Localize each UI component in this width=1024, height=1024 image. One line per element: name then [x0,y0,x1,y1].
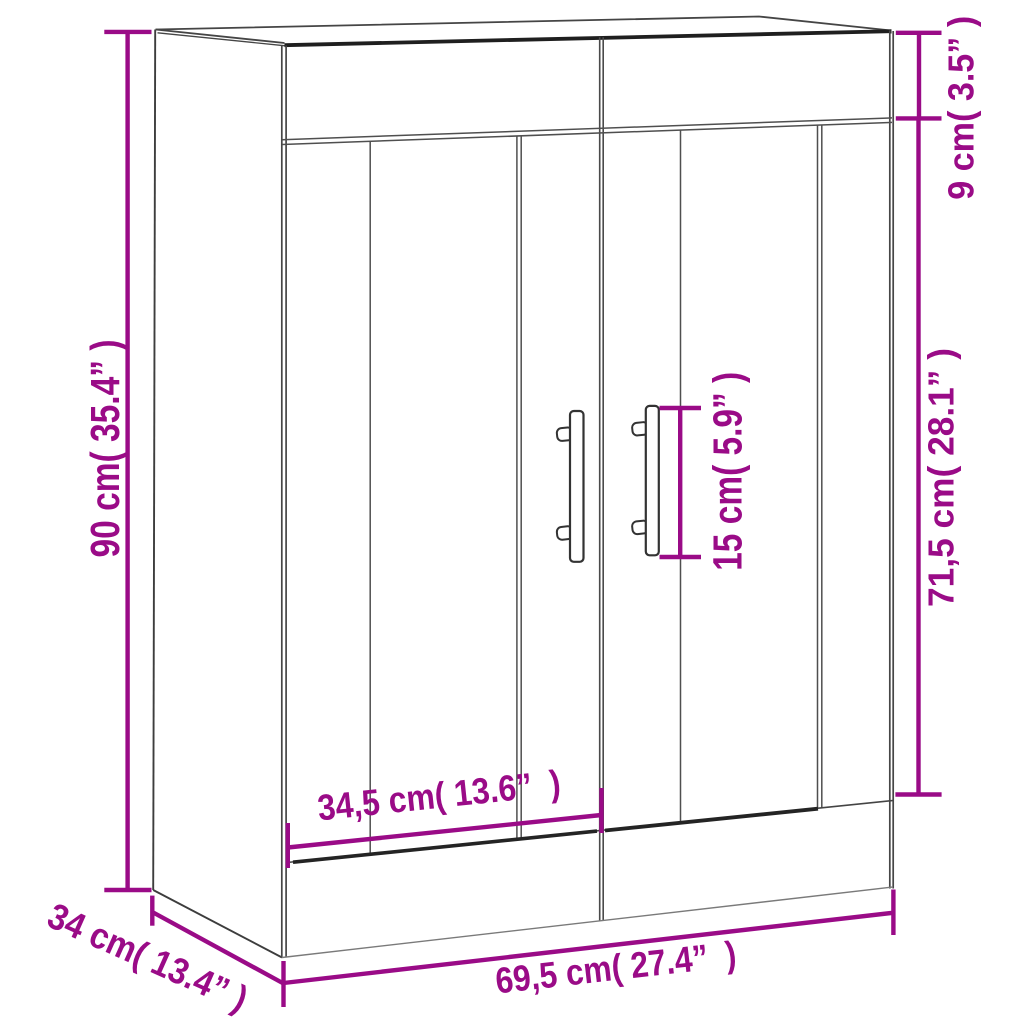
svg-text:15 cm( 5.9” ): 15 cm( 5.9” ) [705,372,751,571]
svg-text:90 cm( 35.4” ): 90 cm( 35.4” ) [82,340,128,558]
svg-text:71,5 cm( 28.1” ): 71,5 cm( 28.1” ) [921,348,962,607]
svg-text:9 cm( 3.5” ): 9 cm( 3.5” ) [941,16,982,200]
